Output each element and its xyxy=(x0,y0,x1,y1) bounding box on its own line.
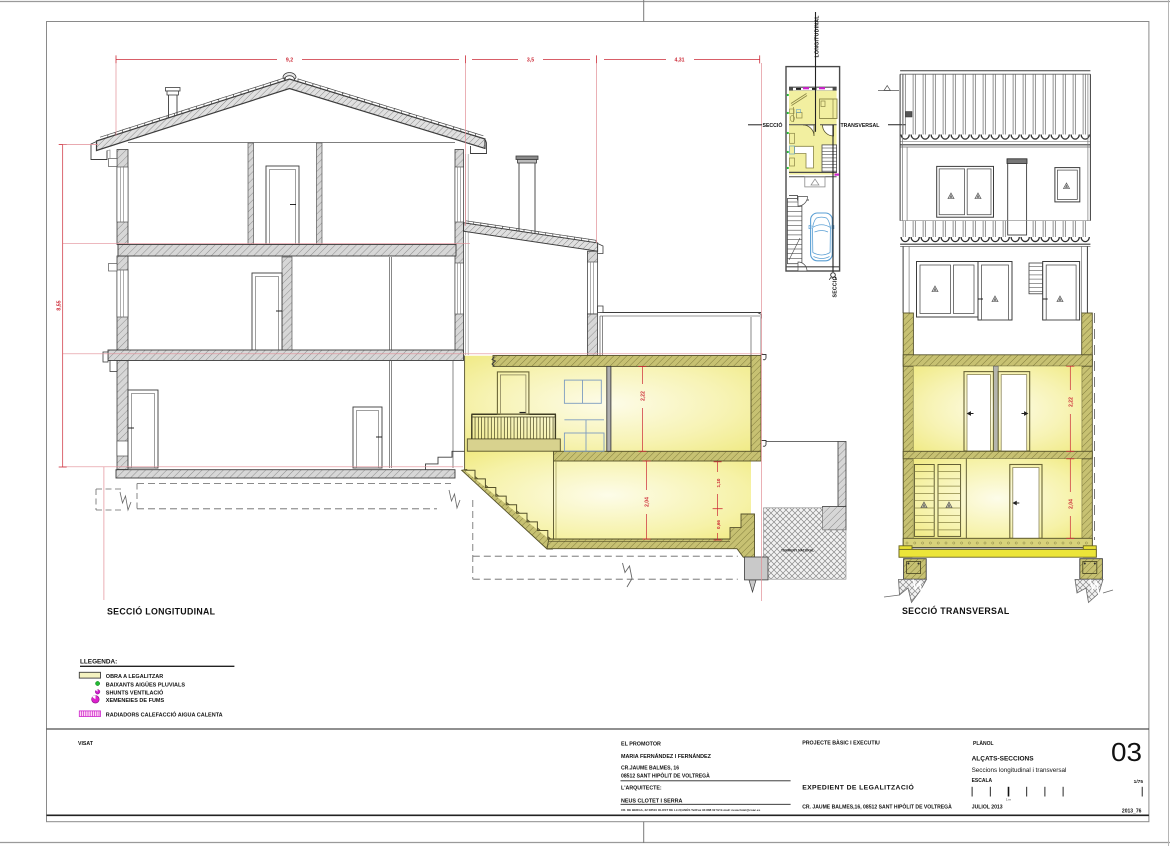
svg-text:RADIADORS CALEFACCIÓ AIGUA CAL: RADIADORS CALEFACCIÓ AIGUA CALENTA xyxy=(106,710,223,718)
svg-text:CR. JAUME BALMES,16, 08512 SAN: CR. JAUME BALMES,16, 08512 SANT HIPÒLIT … xyxy=(802,803,952,811)
svg-text:NEUS CLOTET I SERRA: NEUS CLOTET I SERRA xyxy=(621,799,683,805)
svg-text:ESCALA: ESCALA xyxy=(972,778,993,784)
svg-text:TRANSVERSAL: TRANSVERSAL xyxy=(841,123,881,129)
svg-text:4,31: 4,31 xyxy=(674,58,684,64)
svg-text:SECCIÓ TRANSVERSAL: SECCIÓ TRANSVERSAL xyxy=(902,605,1010,616)
svg-text:CR.JAUME BALMES, 16: CR.JAUME BALMES, 16 xyxy=(621,765,679,771)
svg-text:2,04: 2,04 xyxy=(645,497,651,507)
svg-text:EL PROMOTOR: EL PROMOTOR xyxy=(621,742,661,748)
svg-text:XEMENEIES DE FUMS: XEMENEIES DE FUMS xyxy=(106,698,165,704)
svg-text:LLEGENDA:: LLEGENDA: xyxy=(80,659,117,666)
svg-text:ALÇATS-SECCIONS: ALÇATS-SECCIONS xyxy=(972,755,1035,762)
svg-text:EXPEDIENT DE LEGALITZACIÓ: EXPEDIENT DE LEGALITZACIÓ xyxy=(802,783,914,792)
svg-text:03: 03 xyxy=(1111,737,1142,767)
svg-text:VISAT: VISAT xyxy=(78,741,94,747)
svg-text:BAIXANTS AIGÜES PLUVIALS: BAIXANTS AIGÜES PLUVIALS xyxy=(106,681,186,688)
svg-text:1/75: 1/75 xyxy=(1134,779,1144,785)
svg-text:SECCIÓ: SECCIÓ xyxy=(830,276,838,297)
svg-text:2,04: 2,04 xyxy=(1069,499,1075,509)
svg-text:9,2: 9,2 xyxy=(286,58,293,64)
svg-text:PROJECTE BÀSIC I EXECUTIU: PROJECTE BÀSIC I EXECUTIU xyxy=(802,739,880,746)
svg-text:1,10: 1,10 xyxy=(716,478,721,487)
svg-text:SECCIÓ LONGITUDINAL: SECCIÓ LONGITUDINAL xyxy=(107,606,216,617)
svg-text:OBRA A LEGALITZAR: OBRA A LEGALITZAR xyxy=(106,674,163,680)
svg-text:CR. DE BERGA, 32 08510 OLOST D: CR. DE BERGA, 32 08510 OLOST DE LLUÇANÈS… xyxy=(621,807,761,812)
svg-text:LONGITUDINAL: LONGITUDINAL xyxy=(815,15,821,58)
svg-text:Seccions longitudinal i transv: Seccions longitudinal i transversal xyxy=(972,767,1067,774)
svg-text:0,66: 0,66 xyxy=(716,520,721,529)
svg-text:08512 SANT HIPÒLIT DE VOLTREGÀ: 08512 SANT HIPÒLIT DE VOLTREGÀ xyxy=(621,771,710,779)
svg-text:JULIOL 2013: JULIOL 2013 xyxy=(972,805,1003,811)
svg-text:8,55: 8,55 xyxy=(57,300,63,310)
svg-text:L'ARQUITECTE:: L'ARQUITECTE: xyxy=(621,786,662,792)
svg-text:TERRENY NATURAL: TERRENY NATURAL xyxy=(781,549,814,553)
svg-text:1 m: 1 m xyxy=(1006,798,1012,802)
svg-text:MARIA FERNÁNDEZ I FERNÁNDEZ: MARIA FERNÁNDEZ I FERNÁNDEZ xyxy=(621,753,712,760)
svg-text:SHUNTS VENTILACIÓ: SHUNTS VENTILACIÓ xyxy=(106,689,164,697)
svg-text:PLÀNOL: PLÀNOL xyxy=(973,740,994,747)
svg-text:2013_76: 2013_76 xyxy=(1122,809,1142,815)
svg-text:2,22: 2,22 xyxy=(641,391,647,401)
svg-text:2,22: 2,22 xyxy=(1069,397,1075,407)
svg-text:SECCIÓ: SECCIÓ xyxy=(763,121,783,129)
svg-text:3,5: 3,5 xyxy=(527,58,534,64)
